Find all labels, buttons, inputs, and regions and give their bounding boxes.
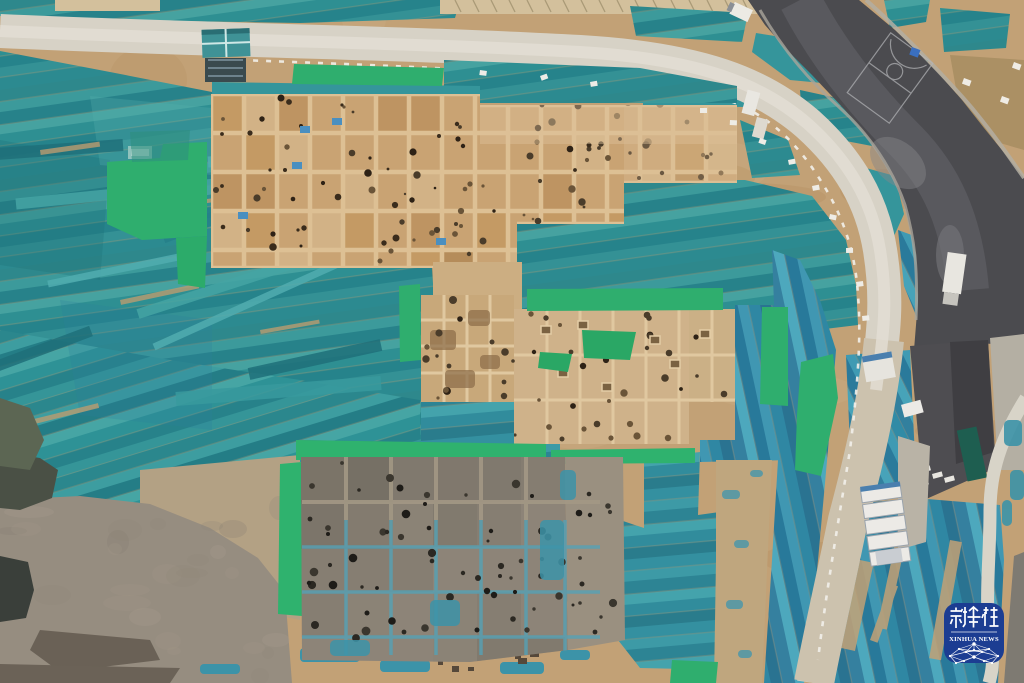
svg-text:XINHUA NEWS: XINHUA NEWS <box>949 636 999 643</box>
